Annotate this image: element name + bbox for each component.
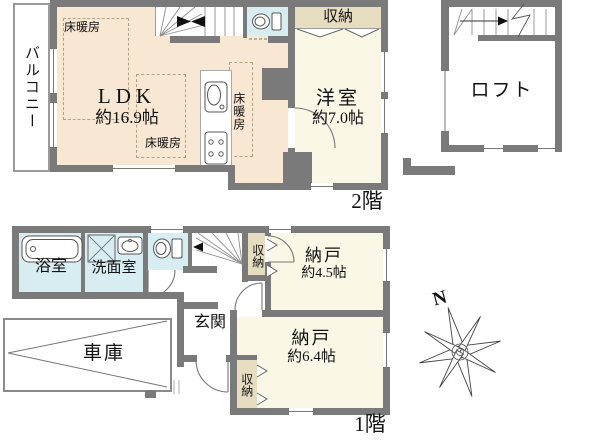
storage-a-size: 約4.5帖	[267, 266, 381, 282]
window	[310, 183, 334, 190]
room-balcony: バルコニー	[13, 3, 50, 172]
window	[288, 408, 314, 415]
wall	[170, 36, 220, 43]
window	[483, 145, 504, 152]
window	[268, 226, 292, 233]
western-room-label: 洋室 約7.0帖	[290, 88, 386, 128]
wall	[243, 7, 247, 38]
floor-heating-label: 床暖房	[231, 66, 245, 156]
wall	[283, 152, 312, 183]
window	[441, 70, 449, 132]
window	[381, 51, 388, 93]
ldk-name: LDK	[62, 84, 192, 108]
western-room-size: 約7.0帖	[290, 110, 386, 128]
ldk-label: LDK 約16.9帖	[62, 84, 192, 128]
window	[537, 145, 556, 152]
floor-plan: バルコニー	[0, 0, 600, 443]
window	[383, 248, 390, 282]
bathroom-label: 浴室	[24, 258, 78, 276]
wall	[183, 266, 217, 273]
wall	[262, 310, 390, 317]
floor-heating-label: 床暖房	[64, 21, 124, 35]
window	[112, 165, 176, 172]
wall	[268, 36, 295, 43]
room-stairs-2f	[156, 7, 243, 36]
closet-2f-label: 収納	[295, 7, 381, 28]
closet-1f-bottom-label: 収納	[239, 364, 253, 406]
room-ldk-corridor	[230, 170, 288, 183]
wall	[12, 292, 183, 299]
floor2-label: 2階	[337, 189, 397, 213]
window	[50, 48, 57, 94]
room-loft	[448, 7, 555, 145]
kitchen-counter	[200, 70, 232, 170]
room-stairs-1f	[192, 233, 242, 266]
wall	[155, 7, 156, 36]
wall	[555, 0, 562, 152]
room-toilet-1f	[148, 233, 188, 270]
storage-b-size: 約6.4帖	[240, 349, 383, 366]
entrance-label: 玄関	[184, 314, 236, 332]
floor-heating-label: 床暖房	[138, 137, 188, 151]
window	[150, 226, 184, 233]
garage-label: 車庫	[52, 343, 156, 365]
wall	[262, 68, 288, 100]
wall	[180, 302, 218, 309]
room-toilet-2f	[246, 7, 288, 36]
wall	[12, 226, 19, 299]
compass-north-label: N	[426, 285, 455, 312]
storage-b-name: 納戸	[240, 328, 383, 349]
balcony-label: バルコニー	[21, 45, 42, 130]
washroom-label: 洗面室	[83, 260, 145, 277]
storage-a-name: 納戸	[267, 246, 381, 266]
wall	[12, 226, 390, 233]
window	[50, 102, 57, 148]
wall	[145, 390, 156, 398]
western-room-name: 洋室	[290, 88, 386, 110]
wall	[441, 0, 562, 7]
porch-step-lines	[174, 380, 179, 394]
loft-label: ロフト	[465, 80, 539, 102]
ldk-size: 約16.9帖	[62, 108, 192, 128]
wall	[226, 355, 235, 362]
storage-a-label: 納戸 約4.5帖	[267, 246, 381, 282]
window	[383, 332, 390, 368]
wall	[177, 355, 197, 362]
wall	[50, 0, 388, 7]
compass-icon	[408, 297, 513, 408]
wall	[403, 166, 455, 175]
wall	[478, 35, 557, 41]
wall	[188, 233, 192, 270]
floor1-label: 1階	[340, 412, 400, 436]
closet-1f-top-label: 収納	[250, 236, 264, 276]
storage-b-label: 納戸 約6.4帖	[240, 328, 383, 366]
wall	[295, 28, 381, 29]
